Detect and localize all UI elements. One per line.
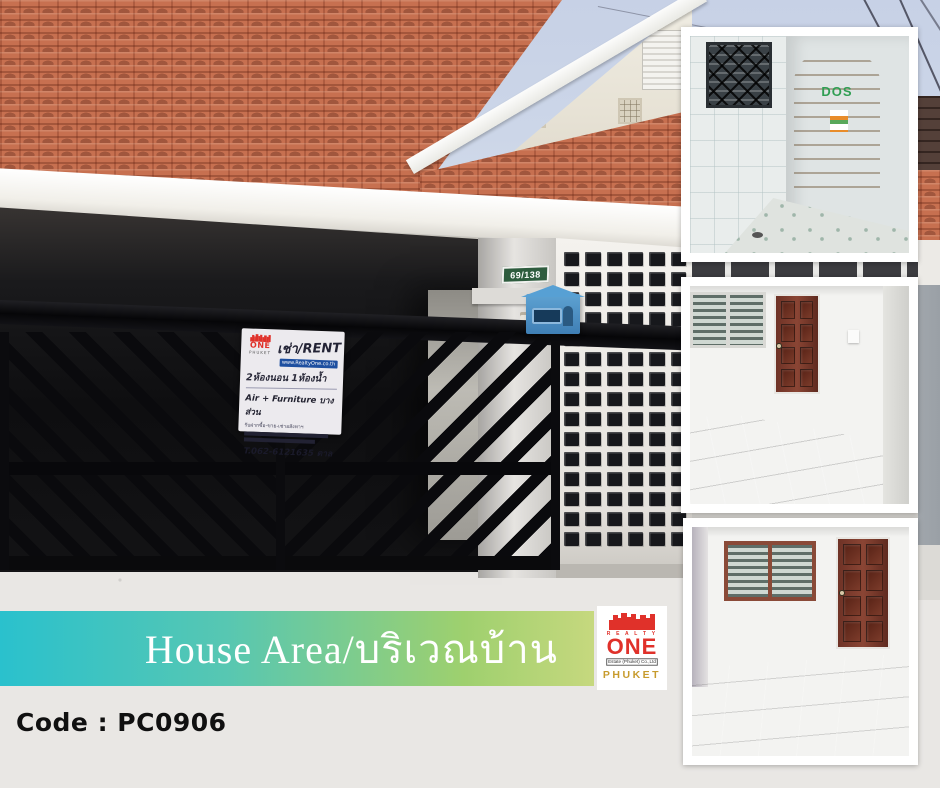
breeze-block-hole	[585, 252, 600, 266]
gate-post	[551, 332, 560, 570]
concrete-floor	[692, 655, 909, 756]
door-panel	[800, 301, 814, 319]
gable-vent	[618, 98, 642, 124]
corner-wall	[692, 527, 708, 687]
tank-sticker	[830, 110, 848, 132]
door-panel	[800, 347, 814, 365]
rent-sign-title: เช่า/RENT	[277, 337, 341, 359]
rent-sign-features: Air + Furniture บางส่วน	[245, 390, 337, 421]
rent-sign-logo-phuket: PHUKET	[247, 349, 273, 355]
breeze-block-hole	[564, 252, 579, 266]
gate-roller-wheel	[22, 552, 68, 580]
door-panels	[781, 301, 813, 387]
room-1-photo	[690, 286, 909, 504]
rent-sign: ONE PHUKET เช่า/RENT www.RealtyOne.co.th…	[238, 328, 345, 435]
door-panel	[866, 570, 884, 591]
rent-sign-header: ONE PHUKET เช่า/RENT	[247, 333, 339, 359]
realty-one-skyline-icon	[608, 612, 656, 630]
inset-photo-room-2	[683, 518, 918, 765]
rent-sign-logo: ONE PHUKET	[247, 333, 274, 355]
inset-photo-room-1	[681, 277, 918, 513]
water-pump	[848, 174, 894, 232]
side-wall	[883, 286, 909, 504]
logo-phuket-text: PHUKET	[603, 669, 661, 681]
breeze-block-hole	[607, 272, 622, 286]
logo-estate-text: Estate (Phuket) Co.,Ltd	[606, 658, 658, 665]
floor-drain	[752, 232, 763, 238]
door-knob	[777, 344, 781, 348]
gate-chevron-left	[0, 332, 280, 570]
door-panel	[781, 369, 795, 387]
door-panel	[781, 301, 795, 319]
door-panel	[843, 544, 861, 565]
grilled-window	[706, 42, 772, 108]
door-panel	[781, 347, 795, 365]
door-panel	[781, 324, 795, 342]
breeze-block-hole	[607, 252, 622, 266]
door-panel	[866, 596, 884, 617]
banner-title: House Area/บริเวณบ้าน	[145, 617, 558, 681]
door-panel	[843, 570, 861, 591]
door-panel	[843, 621, 861, 642]
breeze-block-hole	[649, 252, 664, 266]
door-panel	[800, 369, 814, 387]
door-panel	[800, 324, 814, 342]
wooden-door	[774, 294, 820, 394]
room-2-photo	[692, 527, 909, 756]
window-mullion	[726, 295, 730, 345]
ceiling-shadow	[692, 527, 909, 537]
door-panels	[843, 544, 883, 642]
breeze-block-hole	[628, 272, 643, 286]
gate-roller-wheel	[350, 548, 396, 576]
mailbox-slot	[532, 308, 562, 324]
door-panel	[866, 544, 884, 565]
house-number-text: 69/138	[510, 269, 541, 280]
louver-window	[690, 292, 766, 348]
framed-louver-window	[724, 541, 816, 601]
rent-sign-website: www.RealtyOne.co.th	[279, 359, 337, 369]
property-code: Code : PC0906	[16, 708, 227, 737]
inset-photo-utility-area: DOS	[681, 27, 918, 262]
door-panel	[866, 621, 884, 642]
door-panel	[843, 596, 861, 617]
breeze-block-hole	[564, 272, 579, 286]
concrete-floor	[690, 404, 909, 504]
gate-post	[0, 332, 9, 570]
logo-one-text: ONE	[607, 637, 658, 657]
property-poster: 69/138	[0, 0, 940, 788]
utility-area-photo: DOS	[690, 36, 909, 253]
house-number-sign: 69/138	[502, 265, 550, 284]
water-tank-brand: DOS	[794, 84, 880, 99]
mailbox	[526, 294, 580, 334]
light-switch	[848, 330, 859, 343]
ac-unit	[642, 30, 686, 90]
mailbox-arch	[563, 306, 573, 326]
breeze-block-hole	[628, 252, 643, 266]
wooden-door	[836, 537, 890, 649]
section-banner: House Area/บริเวณบ้าน	[0, 611, 594, 686]
door-knob	[840, 591, 844, 595]
window-mullion	[768, 545, 772, 597]
breeze-block-hole	[585, 272, 600, 286]
steel-gate	[0, 300, 692, 576]
breeze-block-hole	[649, 272, 664, 286]
realty-one-logo: R E A L T Y ONE Estate (Phuket) Co.,Ltd …	[597, 606, 667, 690]
rent-sign-rooms: 2ห้องนอน 1ห้องน้ำ	[246, 370, 337, 390]
